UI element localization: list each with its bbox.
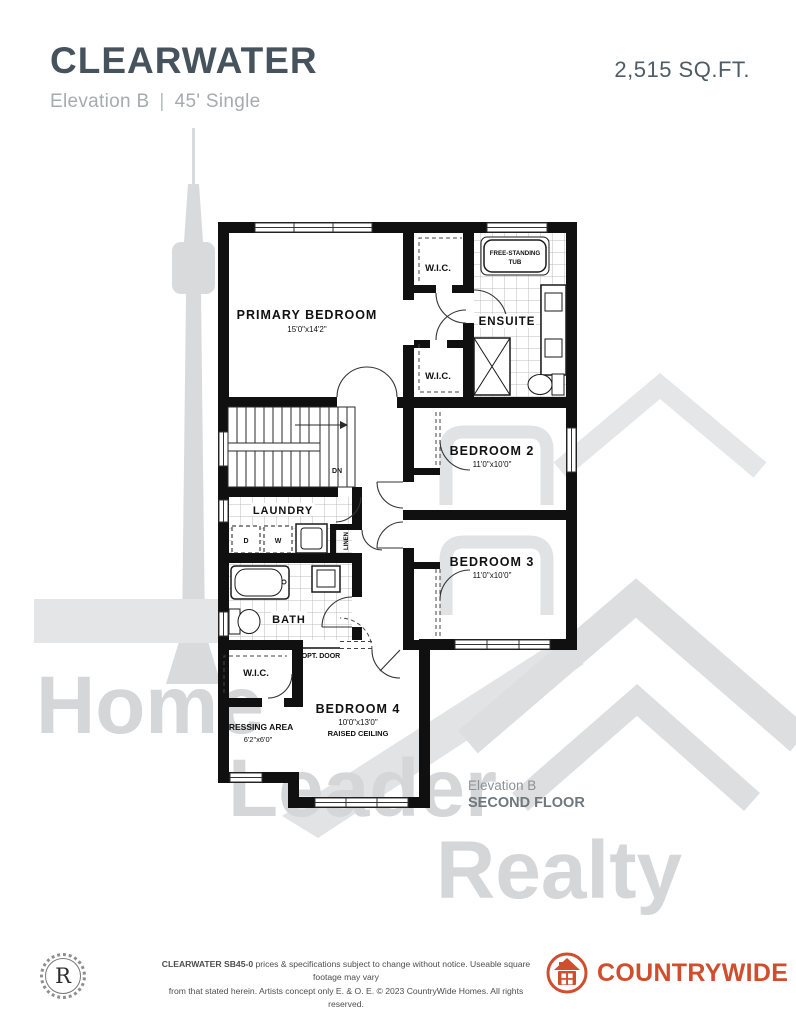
watermark-word-leader: Leader — [228, 743, 497, 834]
room-label-dressing: DRESSING AREA — [223, 722, 294, 732]
window-left-3 — [219, 612, 228, 636]
floor-plan: Home Leader Realty — [0, 0, 796, 1030]
room-label-primary-bedroom: PRIMARY BEDROOM — [237, 308, 378, 322]
room-label-wic-mid: W.I.C. — [425, 371, 451, 382]
watermark-words: Home Leader Realty — [36, 660, 683, 916]
brand-wide: WIDE — [722, 959, 788, 987]
linen-door — [362, 530, 382, 550]
disclaimer-text: CLEARWATER SB45-0 prices & specification… — [150, 958, 542, 1011]
room-note-bedroom4: RAISED CEILING — [328, 729, 389, 738]
floor-elevation-label: Elevation B — [468, 778, 536, 793]
room-label-ensuite: ENSUITE — [479, 316, 536, 328]
wic-lower-door — [268, 674, 292, 698]
window-ensuite-top — [487, 223, 547, 232]
primary-double-door — [337, 367, 367, 397]
brand-country: COUNTRY — [597, 959, 722, 987]
room-label-bedroom4: BEDROOM 4 — [316, 702, 401, 716]
room-label-bedroom3: BEDROOM 3 — [450, 555, 535, 569]
bedroom3-door — [377, 522, 403, 548]
floor-name-label: SECOND FLOOR — [468, 795, 585, 811]
room-dims-bedroom2: 11'0"x10'0" — [473, 460, 512, 469]
room-label-bedroom2: BEDROOM 2 — [450, 444, 535, 458]
seal-letter: R — [45, 958, 81, 994]
watermark-band-horizontal — [34, 599, 218, 643]
ensuite-vanity — [541, 285, 566, 375]
wic-top-shelf — [419, 238, 462, 281]
dryer-label: D — [243, 538, 248, 545]
watermark-word-realty: Realty — [436, 825, 683, 916]
page: CLEARWATER Elevation B|45' Single 2,515 … — [0, 0, 796, 1030]
countrywide-wordmark: COUNTRYWIDE — [597, 959, 788, 988]
bath-toilet-icon — [229, 609, 260, 634]
tub-label-line2: TUB — [509, 259, 522, 266]
room-dims-primary-bedroom: 15'0"x14'2" — [287, 325, 327, 334]
stairs-dn-label: DN — [332, 468, 342, 475]
disclaimer-model-code: CLEARWATER SB45-0 — [162, 959, 253, 969]
window-bedroom3-bottom — [455, 640, 550, 649]
linen-label: LINEN — [344, 532, 350, 550]
window-dressing-bottom — [230, 773, 262, 782]
room-dims-dressing: 6'2"x6'0" — [244, 735, 273, 744]
countrywide-house-icon — [545, 951, 589, 995]
window-bedroom2-right — [567, 428, 576, 472]
window-left-2 — [219, 500, 228, 522]
room-label-laundry: LAUNDRY — [253, 505, 313, 517]
laundry-sink — [296, 524, 327, 553]
countrywide-logo: COUNTRYWIDE — [545, 951, 788, 995]
window-bedroom4-bottom — [315, 798, 408, 807]
shower — [474, 338, 510, 395]
wic-mid-door — [436, 310, 466, 340]
floor-annotation: Elevation B SECOND FLOOR — [468, 778, 585, 811]
stairs — [228, 407, 355, 487]
bath-tub — [231, 566, 289, 599]
washer-label: W — [275, 538, 282, 545]
sink-icon — [545, 339, 562, 357]
ensuite-toilet-icon — [528, 374, 564, 395]
opt-door-label: OPT. DOOR — [302, 653, 341, 660]
tub-label-line1: FREE-STANDING — [490, 250, 541, 257]
window-left-1 — [219, 432, 228, 466]
bath-sink — [312, 566, 340, 592]
room-label-bath: BATH — [272, 614, 306, 626]
room-dims-bedroom4: 10'0"x13'0" — [338, 718, 378, 727]
disclaimer-line2: from that stated herein. Artists concept… — [169, 986, 524, 1009]
wic-mid-shelf — [419, 344, 462, 392]
disclaimer-line1: prices & specifications subject to chang… — [253, 959, 530, 982]
registered-seal: R — [40, 953, 86, 999]
wic-top-door — [436, 293, 466, 323]
room-dims-bedroom3: 11'0"x10'0" — [473, 571, 512, 580]
bedroom4-door — [372, 650, 400, 678]
bedroom2-door — [377, 482, 403, 508]
room-label-wic-lower: W.I.C. — [243, 668, 269, 679]
sink-icon — [545, 293, 562, 311]
footer: R CLEARWATER SB45-0 prices & specificati… — [0, 945, 796, 1015]
window-primary-top — [255, 223, 372, 232]
room-label-wic-top: W.I.C. — [425, 263, 451, 274]
